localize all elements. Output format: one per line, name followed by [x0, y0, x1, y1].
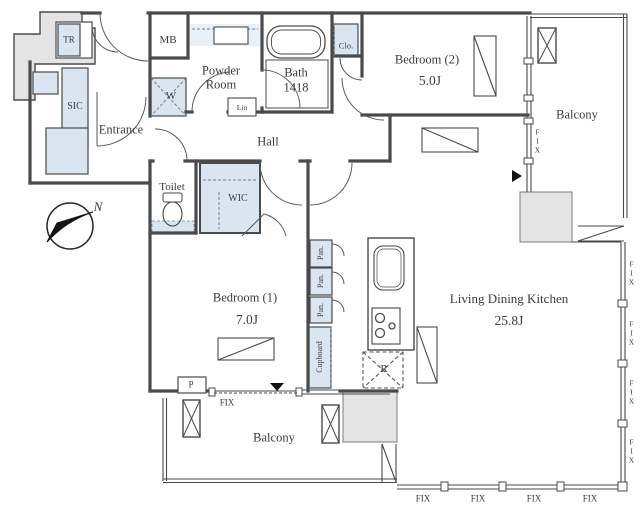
room-label-powder-1: Powder [202, 64, 240, 77]
label-sic: SIC [67, 102, 83, 113]
toilet-door-arc [155, 129, 187, 161]
balcony-partition-bottom [382, 444, 396, 482]
room-label-entrance: Entrance [99, 123, 143, 136]
walls [30, 13, 530, 391]
label-pantry-2: Pan. [317, 274, 325, 288]
fix-label-right-1: FIX [627, 260, 635, 287]
fix-label-bottom-4: FIX [583, 494, 598, 503]
right-balcony-rail [624, 14, 628, 218]
right-balcony-top-rail [530, 14, 627, 18]
front-door-arc [100, 13, 148, 61]
marker-right-balcony [512, 170, 522, 182]
label-ldk-size: 25.8J [495, 314, 524, 328]
room-label-bedroom1: Bedroom (1) [213, 291, 277, 304]
label-tr: TR [63, 35, 75, 44]
label-fridge: R [380, 364, 387, 376]
label-bedroom2-size: 5.0J [419, 74, 441, 88]
fix-label-bedroom1: FIX [220, 398, 235, 407]
label-cupboard: Cupboard [316, 341, 324, 373]
window-mullions [209, 58, 627, 491]
sic-shelf-3 [46, 128, 88, 174]
room-label-bath: Bath [284, 66, 308, 79]
room-label-hall: Hall [257, 135, 279, 148]
ldk-south-glass [397, 485, 625, 489]
sic-shelf-1 [33, 72, 58, 94]
tr-door-arc [92, 26, 118, 52]
fix-label-bottom-1: FIX [416, 494, 431, 503]
marker-bottom-balcony [270, 383, 284, 391]
label-pipe-space: P [188, 380, 193, 389]
label-mb: MB [159, 35, 176, 47]
room-label-toilet: Toilet [159, 182, 185, 194]
bedroom1-door-arc [260, 163, 302, 205]
fix-label-right-4: FIX [627, 438, 635, 465]
label-linen: Lin [237, 104, 247, 112]
bathtub [267, 26, 325, 58]
fix-label-right-balcony: FIX [533, 128, 541, 155]
balcony-partition-right [578, 226, 624, 241]
pantry-door-arcs [332, 244, 344, 312]
compass-north-label: N [94, 200, 103, 214]
label-pantry-1: Pan. [317, 246, 325, 260]
ac-unit-bottom-balcony [343, 390, 397, 442]
fix-label-bottom-3: FIX [527, 494, 542, 503]
fix-label-bottom-2: FIX [471, 494, 486, 503]
label-pantry-3: Pan. [317, 303, 325, 317]
bathtub-inner [272, 30, 321, 54]
room-label-balcony-right: Balcony [556, 108, 598, 121]
room-label-balcony-bottom: Balcony [253, 431, 295, 444]
closet-door-arc [340, 58, 362, 80]
room-label-powder-2: Room [206, 78, 237, 91]
label-wic: WIC [228, 194, 247, 205]
label-closet: Clo. [339, 42, 353, 51]
fix-label-right-2: FIX [627, 320, 635, 347]
fix-label-right-3: FIX [627, 379, 635, 406]
label-washer: W [166, 91, 176, 103]
label-bath-size: 1418 [284, 81, 309, 94]
bottom-balcony-rail [163, 479, 397, 483]
toilet-tank [163, 193, 182, 202]
bottom-balcony-left-rail [163, 398, 167, 481]
entrance-door-arc [97, 92, 146, 146]
room-label-bedroom2: Bedroom (2) [395, 53, 459, 66]
powder-sink [214, 27, 248, 44]
ac-unit-right-balcony [520, 192, 572, 242]
ldk-door-arc [310, 163, 352, 205]
bedroom2-glass-wall [527, 16, 531, 192]
compass-north-icon [47, 203, 93, 249]
room-label-ldk: Living Dining Kitchen [450, 292, 568, 306]
floor-plan: TR MB SIC Entrance W Powder Room Bath 14… [0, 0, 640, 509]
label-bedroom1-size: 7.0J [236, 313, 258, 327]
